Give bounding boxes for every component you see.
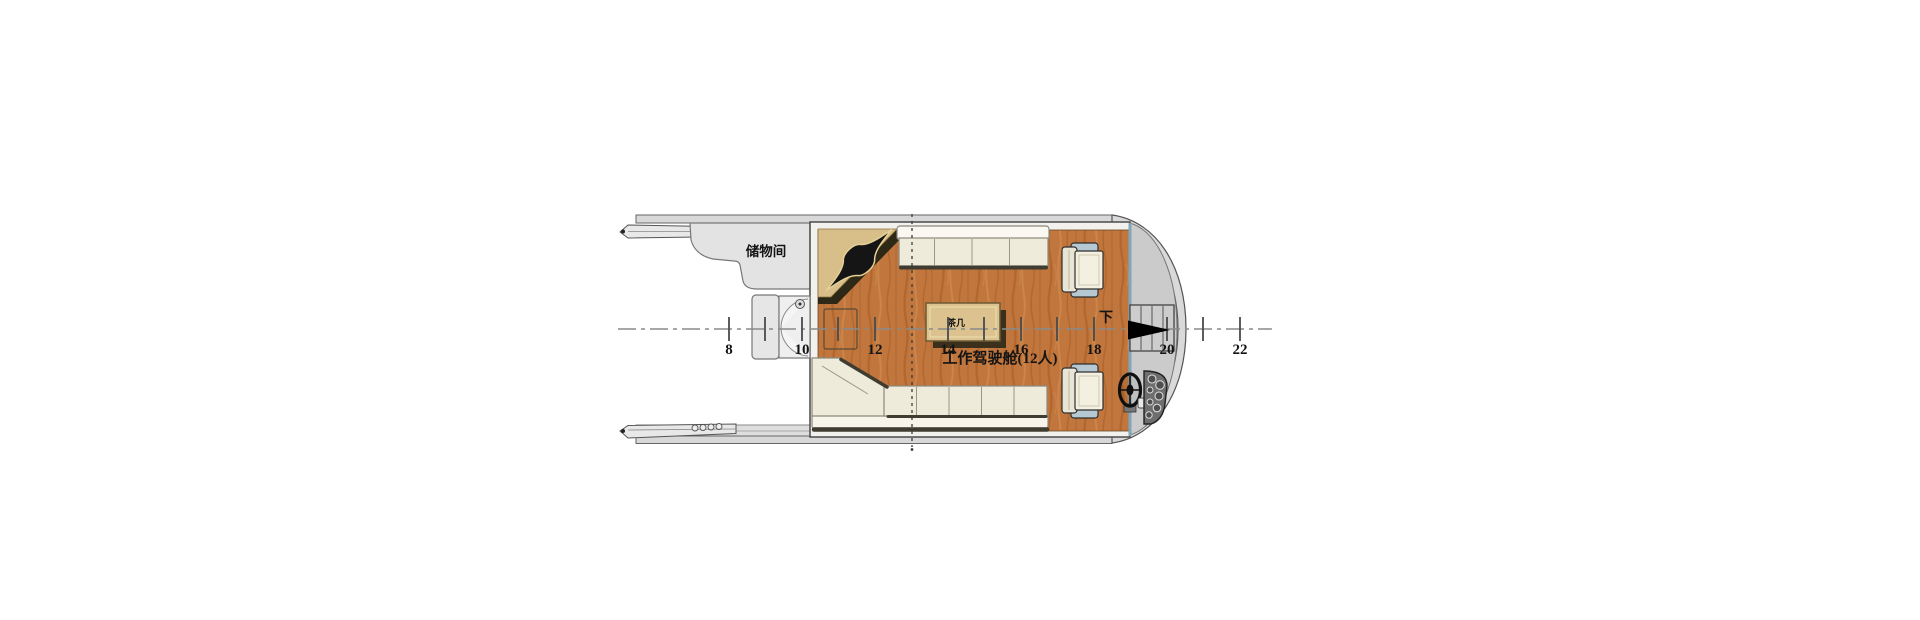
down-label: 下	[1099, 310, 1113, 326]
station-label-20: 20	[1160, 342, 1175, 358]
station-label-18: 18	[1087, 342, 1102, 358]
station-label-12: 12	[868, 342, 883, 358]
storage-room: 储物间	[690, 223, 810, 289]
coffee-table: 茶几	[926, 303, 1006, 348]
instrument-console	[1144, 371, 1167, 424]
station-label-8: 8	[725, 342, 733, 358]
deck-plan-drawing: 储物间	[0, 0, 1920, 620]
top-settee	[897, 226, 1049, 268]
chair-forward-starboard	[1062, 364, 1103, 418]
deck-plan: 储物间	[0, 0, 1920, 620]
chair-forward-port	[1062, 243, 1103, 297]
station-label-10: 10	[795, 342, 810, 358]
steering-wheel-icon	[1120, 374, 1141, 406]
storage-room-label: 储物间	[745, 243, 787, 259]
station-label-22: 22	[1233, 342, 1248, 358]
cabin-label: 工作驾驶舱(12人)	[943, 349, 1058, 367]
